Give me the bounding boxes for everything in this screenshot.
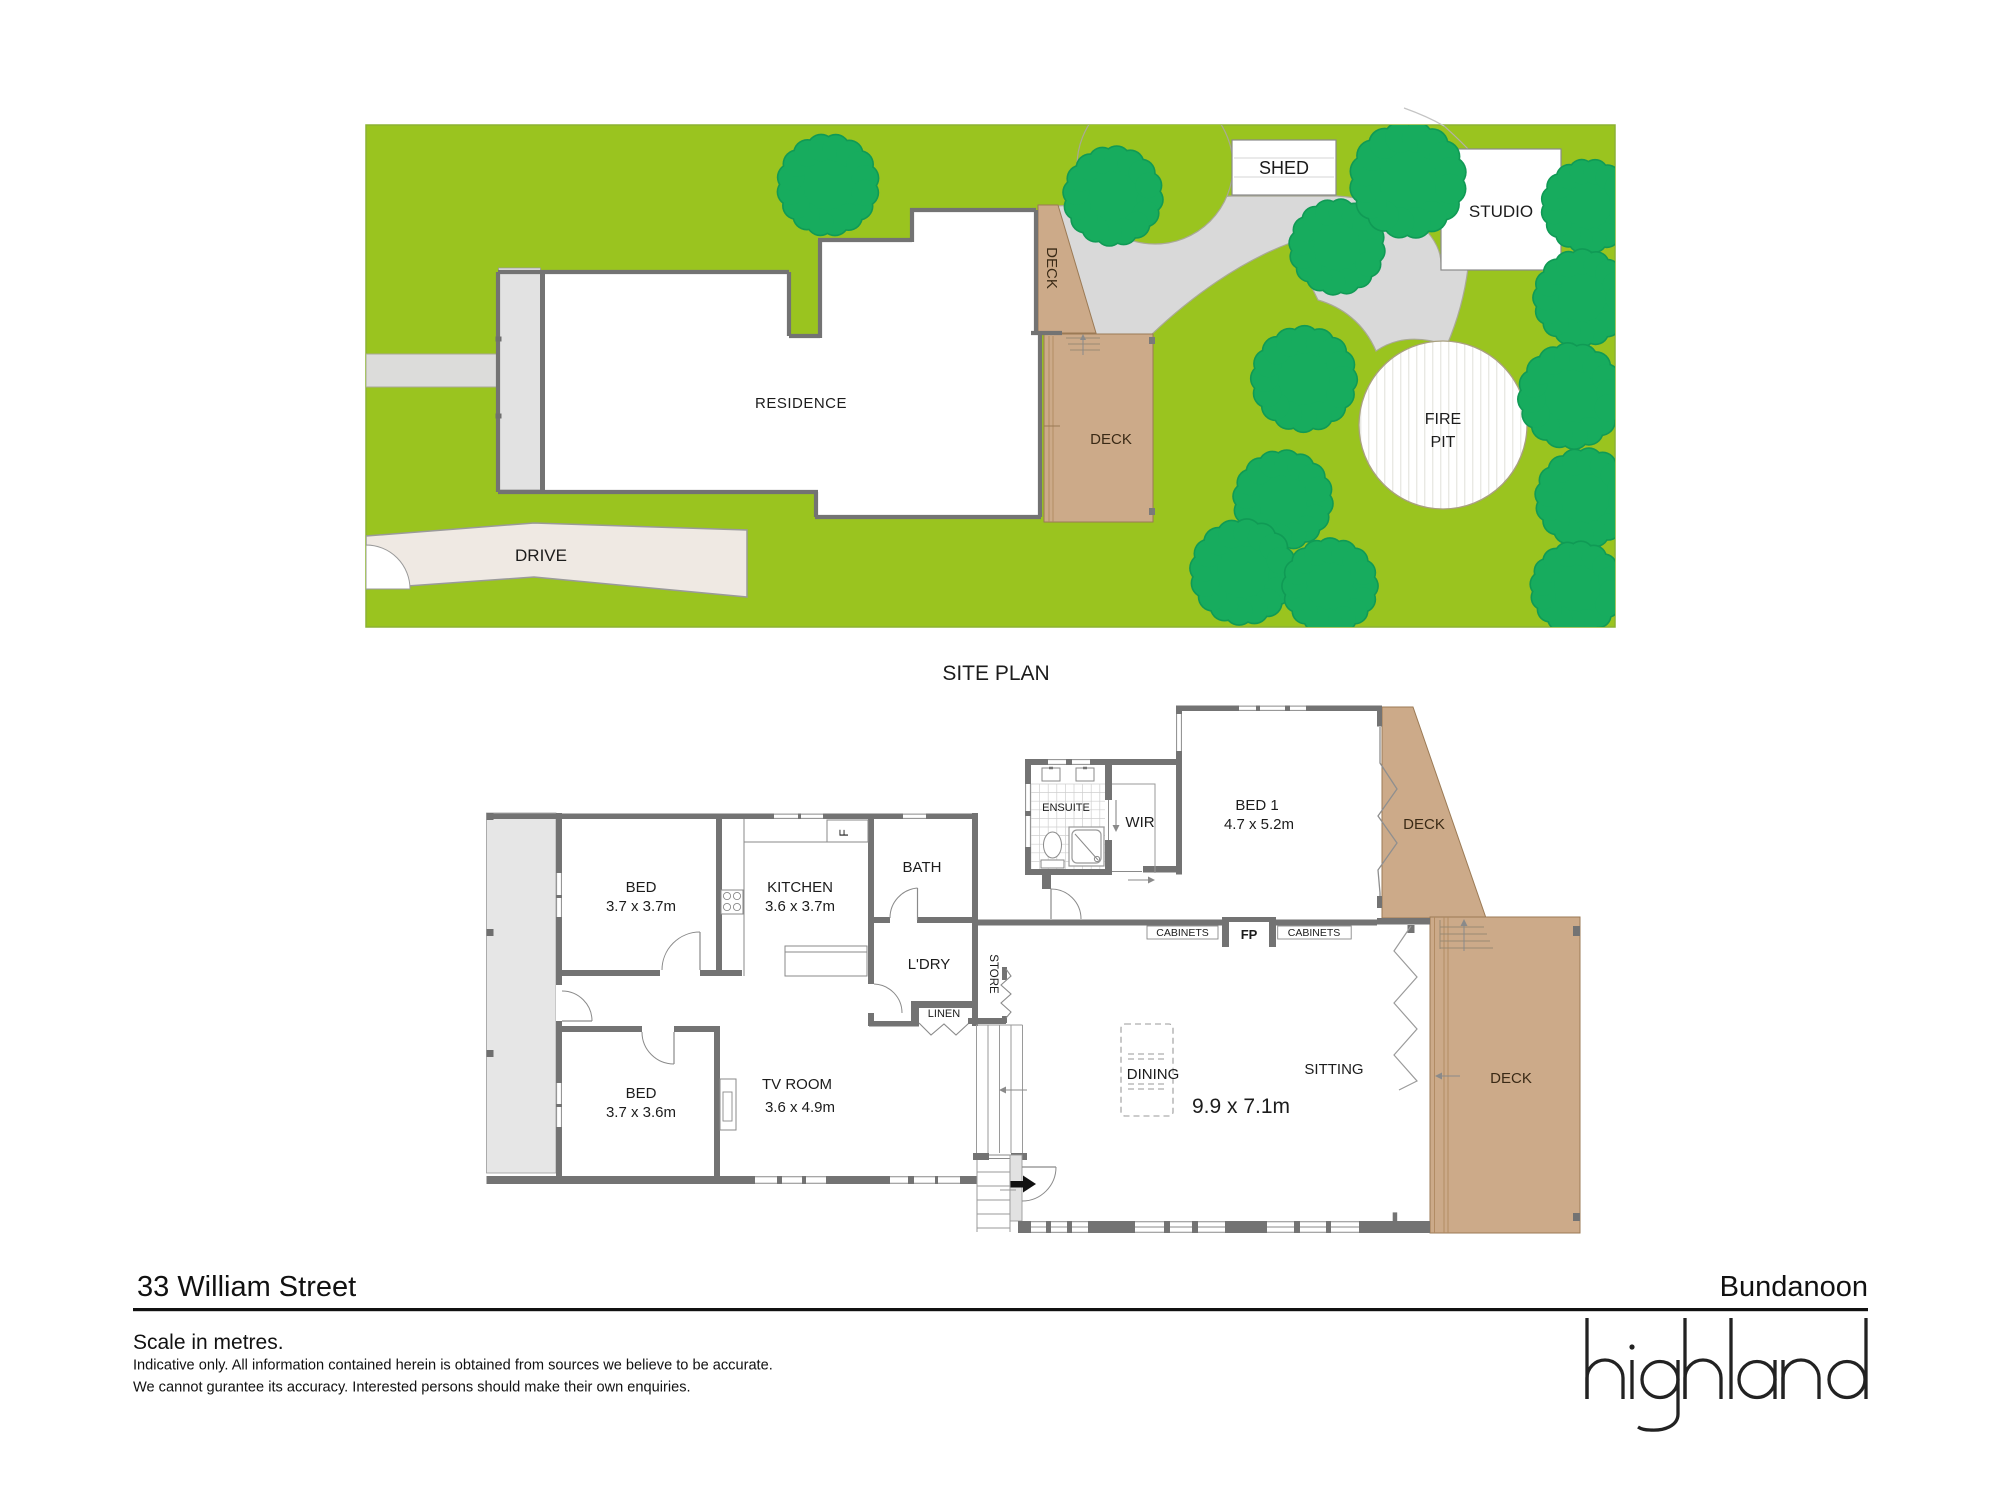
svg-text:F: F [837, 829, 851, 836]
svg-text:SITTING: SITTING [1304, 1061, 1363, 1078]
svg-text:3.6 x 4.9m: 3.6 x 4.9m [765, 1099, 835, 1116]
svg-text:DECK: DECK [1043, 247, 1060, 289]
svg-text:DRIVE: DRIVE [515, 546, 567, 565]
svg-text:SHED: SHED [1259, 158, 1309, 178]
svg-text:Scale in metres.: Scale in metres. [133, 1331, 284, 1354]
svg-text:DECK: DECK [1403, 816, 1445, 833]
svg-text:PIT: PIT [1431, 434, 1456, 451]
svg-text:STORE: STORE [987, 954, 999, 994]
svg-text:TV ROOM: TV ROOM [762, 1076, 832, 1093]
svg-text:SITE PLAN: SITE PLAN [942, 662, 1049, 685]
svg-text:CABINETS: CABINETS [1156, 927, 1209, 939]
svg-text:FIRE: FIRE [1425, 411, 1461, 428]
svg-text:BED: BED [626, 879, 657, 896]
svg-text:L'DRY: L'DRY [908, 956, 951, 973]
svg-text:BATH: BATH [903, 859, 942, 876]
svg-text:We cannot gurantee its accurac: We cannot gurantee its accuracy. Interes… [133, 1380, 691, 1396]
svg-text:WIR: WIR [1125, 814, 1154, 831]
svg-text:Bundanoon: Bundanoon [1720, 1271, 1868, 1303]
svg-text:CABINETS: CABINETS [1288, 927, 1341, 939]
svg-text:4.7 x 5.2m: 4.7 x 5.2m [1224, 816, 1294, 833]
svg-text:DECK: DECK [1490, 1070, 1532, 1087]
svg-text:STUDIO: STUDIO [1469, 202, 1533, 221]
svg-text:KITCHEN: KITCHEN [767, 879, 833, 896]
svg-text:LINEN: LINEN [928, 1008, 960, 1020]
svg-text:3.6 x 3.7m: 3.6 x 3.7m [765, 898, 835, 915]
svg-text:3.7 x 3.6m: 3.7 x 3.6m [606, 1104, 676, 1121]
svg-text:BED 1: BED 1 [1235, 797, 1278, 814]
svg-text:3.7 x 3.7m: 3.7 x 3.7m [606, 898, 676, 915]
svg-text:DINING: DINING [1127, 1066, 1180, 1083]
svg-text:9.9 x 7.1m: 9.9 x 7.1m [1192, 1095, 1290, 1118]
svg-text:RESIDENCE: RESIDENCE [755, 395, 847, 412]
svg-text:33 William Street: 33 William Street [137, 1271, 356, 1303]
svg-text:BED: BED [626, 1085, 657, 1102]
svg-text:DECK: DECK [1090, 431, 1132, 448]
svg-text:FP: FP [1241, 927, 1258, 942]
svg-text:ENSUITE: ENSUITE [1042, 802, 1090, 814]
svg-text:Indicative only. All informati: Indicative only. All information contain… [133, 1358, 773, 1374]
